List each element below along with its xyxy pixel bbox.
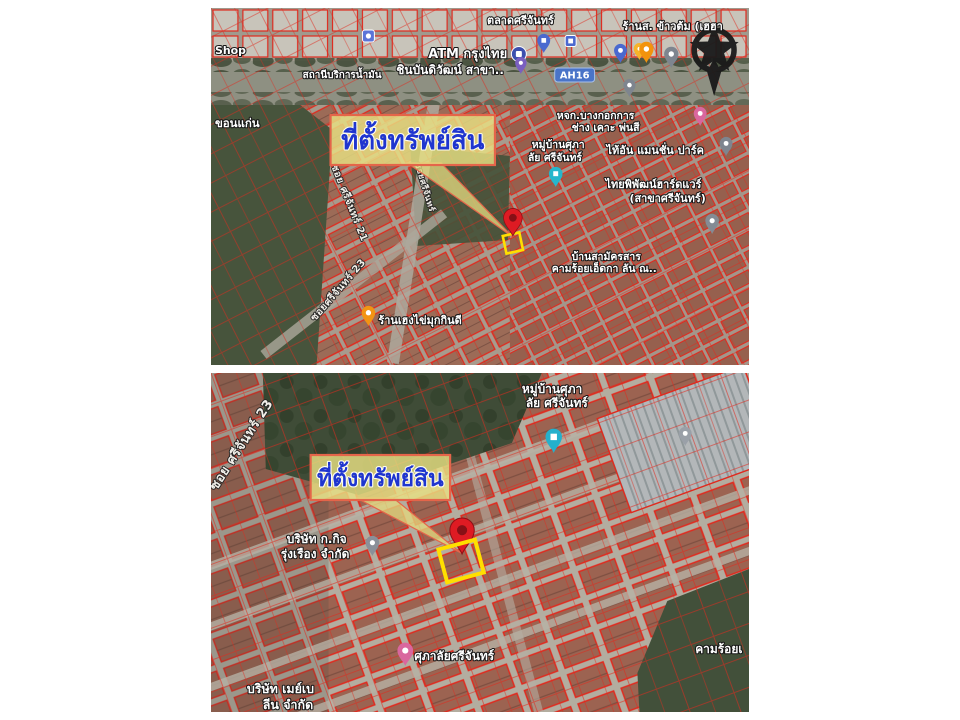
label-maybe-company: บริษัท เมย์เบ [247, 681, 314, 696]
label-hardware: (สาขาศรีจันทร์) [629, 192, 705, 205]
label-market: ตลาดศรีจันทร์ [487, 14, 554, 27]
bank-icon [565, 36, 576, 47]
callout-label: ที่ตั้งทรัพย์สิน [317, 461, 444, 492]
callout-label: ที่ตั้งทรัพย์สิน [341, 120, 484, 156]
label-village: หมู่บ้านศุภา [522, 382, 582, 397]
bottom-map: หมู่บ้านศุภา ลัย ศรีจันทร์ ซอย ศรีจันทร์… [211, 373, 749, 712]
label-maybe-company: ลีน จำกัด [262, 697, 313, 712]
label-village: ลัย ศรีจันทร์ [526, 396, 589, 410]
bottom-map-canvas: หมู่บ้านศุภา ลัย ศรีจันทร์ ซอย ศรีจันทร์… [211, 373, 749, 712]
label-supalai: ศุภาลัยศรีจันทร์ [414, 649, 495, 664]
label-baan: คามร้อยเอ็ดกา ลัน ณ.. [552, 261, 657, 275]
label-workshop: ช่าง เคาะ พ่นสี [572, 121, 640, 134]
top-map-canvas: AH16 Shop สถานีบริการน้ำมัน ATM กรุงไทย … [211, 8, 749, 365]
label-workshop: หจก.บางกอกการ [557, 110, 635, 122]
label-mansion: ไท้อัน แมนชั่น ปาร์ค [605, 142, 704, 157]
label-shop: Shop [215, 44, 246, 57]
label-khon-kaen: ขอนแก่น [215, 116, 260, 130]
label-village: ลัย ศรีจันทร์ [528, 151, 583, 164]
label-gas-station: สถานีบริการน้ำมัน [303, 67, 382, 81]
label-kham-roi: คามร้อยเ [695, 642, 742, 656]
gas-station-icon [362, 30, 374, 42]
label-pearl-shop: ร้านเฮงไข่มุกกินดี [378, 313, 461, 328]
top-map: AH16 Shop สถานีบริการน้ำมัน ATM กรุงไทย … [211, 8, 749, 365]
label-village: หมู่บ้านศุภา [532, 138, 585, 152]
label-rice-shop: ร้านส. ข้าวต้ม (เฮฮา [622, 20, 722, 33]
label-hardware: ไทยพิพัฒน์ฮาร์ดแวร์ [604, 177, 702, 191]
label-atm: ATM กรุงไทย [428, 45, 507, 62]
label-company: บริษัท ก.กิจ [287, 532, 347, 546]
road-badge-ah16: AH16 [555, 68, 595, 82]
label-baan: บ้านสามัครสาร [572, 250, 642, 263]
road-badge-label: AH16 [560, 70, 590, 81]
label-company: รุ่งเรือง จำกัด [281, 547, 350, 562]
label-atm-branch: ชินบันดิวัฒน์ สาขา.. [396, 63, 504, 77]
